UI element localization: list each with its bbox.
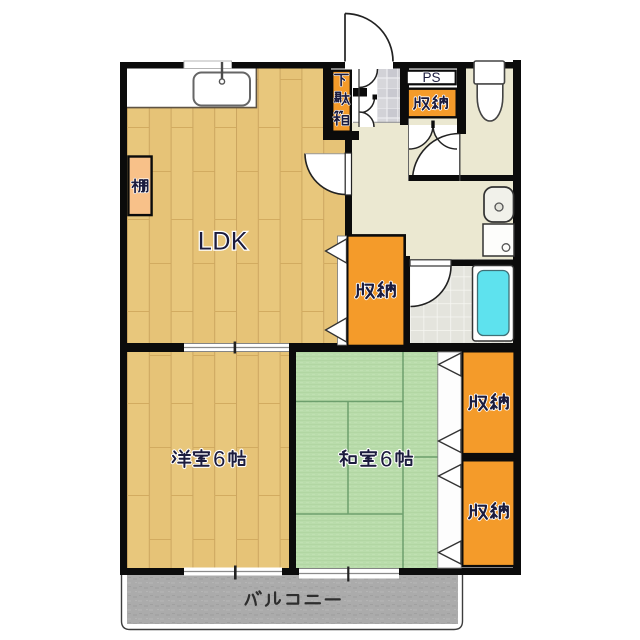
svg-text:LDK: LDK: [198, 228, 248, 256]
svg-text:6: 6: [213, 447, 225, 472]
svg-text:6: 6: [380, 447, 392, 472]
svg-text:PS: PS: [422, 70, 440, 85]
